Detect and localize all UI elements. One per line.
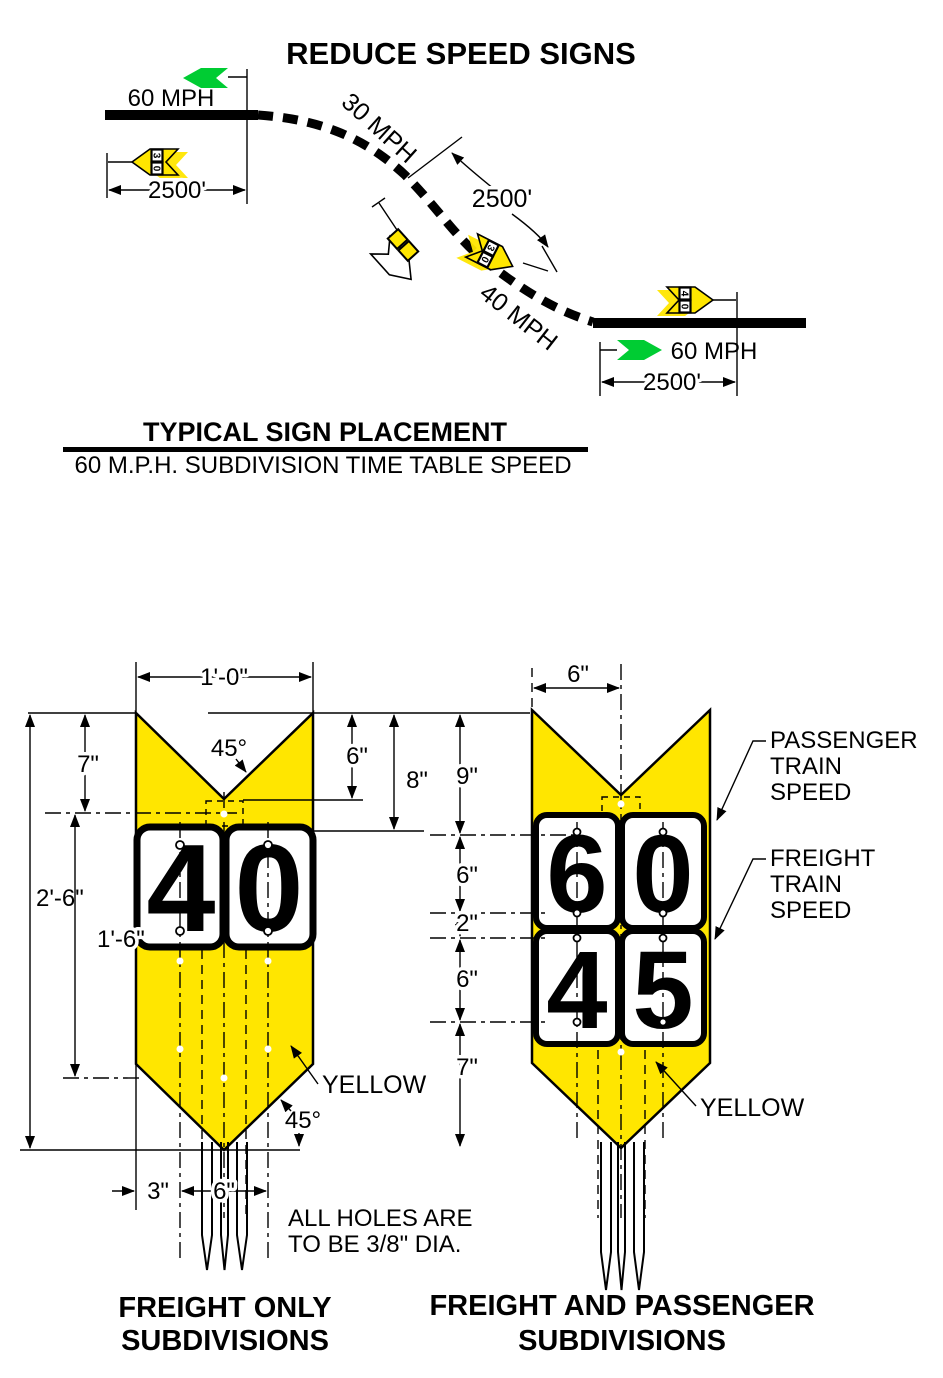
- dimension-arc: [512, 214, 548, 247]
- dimension-arc: [452, 153, 494, 189]
- freight-speed-label-line2: TRAIN: [770, 871, 842, 898]
- leader-line: [523, 263, 548, 271]
- drawing-sheet: REDUCE SPEED SIGNS 30 MPH 40 MPH 60 MPH …: [0, 0, 943, 1378]
- leader-line: [717, 741, 766, 820]
- passenger-speed-label-line1: PASSENGER: [770, 727, 918, 754]
- extension-line: [542, 246, 557, 272]
- total-height-dim: 2'-6": [36, 885, 84, 912]
- notch-angle-dim: 45°: [211, 735, 247, 762]
- hole-dot: [177, 958, 184, 965]
- notch-depth-dim: 6": [346, 743, 368, 770]
- sign-post-lines: [202, 1142, 212, 1270]
- freight-only-caption-line2: SUBDIVISIONS: [121, 1325, 329, 1357]
- hole-dot: [221, 1075, 228, 1082]
- mini-sign-left: 3 0: [132, 149, 188, 178]
- sign-post-lines: [601, 1142, 611, 1290]
- mini-digit: 0: [151, 166, 162, 172]
- distance-right-dim: 2500': [643, 369, 701, 396]
- hole-dot: [265, 1046, 272, 1053]
- hole-offset-dim: 3": [147, 1178, 169, 1205]
- track-segment-60mph-right: [593, 318, 806, 328]
- speed-limit-right-label: 60 MPH: [671, 338, 758, 365]
- mini-digit: 0: [679, 304, 690, 310]
- freight-passenger-sign-detail: 6" 6 0 4 5 9": [429, 661, 917, 1357]
- freight-only-caption-line1: FREIGHT ONLY: [118, 1292, 331, 1324]
- tick-mark: [372, 198, 385, 207]
- freight-speed-label-line1: FREIGHT: [770, 845, 876, 872]
- reduce-speed-signs-diagram: REDUCE SPEED SIGNS 30 MPH 40 MPH 60 MPH …: [0, 0, 943, 1378]
- typical-placement-diagram: REDUCE SPEED SIGNS 30 MPH 40 MPH 60 MPH …: [63, 36, 806, 479]
- sign-post-lines: [634, 1142, 644, 1290]
- mini-digit: 4: [679, 291, 690, 297]
- hole-dot: [618, 801, 625, 808]
- hole-dot: [177, 1046, 184, 1053]
- plaque-top-dim: 8": [406, 767, 428, 794]
- mounting-hole: [660, 910, 667, 917]
- freight-passenger-caption-line1: FREIGHT AND PASSENGER: [429, 1290, 814, 1322]
- track-curve: [258, 115, 593, 322]
- color-callout-label: YELLOW: [322, 1071, 427, 1099]
- passenger-speed-label-line3: SPEED: [770, 779, 851, 806]
- mini-digit: 3: [151, 153, 162, 159]
- placement-heading: TYPICAL SIGN PLACEMENT: [143, 417, 508, 447]
- top-height-dim: 7": [77, 751, 99, 778]
- mounting-hole: [574, 1019, 581, 1026]
- freight-passenger-caption-line2: SUBDIVISIONS: [518, 1325, 726, 1357]
- mounting-hole: [574, 935, 581, 942]
- hole-dot: [221, 811, 228, 818]
- mounting-hole: [660, 935, 667, 942]
- speed-limit-left-label: 60 MPH: [128, 85, 215, 112]
- leader-line: [715, 859, 766, 939]
- holes-note-line2: TO BE 3/8" DIA.: [288, 1231, 461, 1258]
- color-callout-label: YELLOW: [700, 1094, 805, 1122]
- placement-subheading: 60 M.P.H. SUBDIVISION TIME TABLE SPEED: [74, 452, 571, 479]
- page-title: REDUCE SPEED SIGNS: [286, 36, 636, 71]
- green-speed-arrow-right-icon: [617, 340, 662, 360]
- distance-left-dim: 2500': [148, 177, 206, 204]
- mounting-hole: [176, 841, 184, 849]
- curve-speed-lower-label: 40 MPH: [474, 279, 562, 357]
- half-width-dim: 6": [567, 661, 589, 688]
- width-dim: 1'-0": [200, 664, 248, 691]
- body-height-dim: 1'-6": [97, 926, 145, 953]
- top-dim: 9": [456, 763, 478, 790]
- lower-plaque-dim: 6": [456, 966, 478, 993]
- mounting-hole: [660, 1019, 667, 1026]
- distance-mid-dim: 2500': [472, 185, 532, 213]
- holes-note-line1: ALL HOLES ARE: [288, 1205, 473, 1232]
- mini-sign-restriction-point: [371, 229, 429, 288]
- hole-dot: [618, 1049, 625, 1056]
- hole-dot: [265, 958, 272, 965]
- mounting-hole: [264, 927, 272, 935]
- freight-speed-label-line3: SPEED: [770, 897, 851, 924]
- gap-dim: 2": [456, 910, 478, 937]
- mounting-hole: [176, 927, 184, 935]
- upper-plaque-dim: 6": [456, 862, 478, 889]
- point-dim: 7": [456, 1054, 478, 1081]
- mounting-hole: [574, 829, 581, 836]
- mini-sign-right: 4 0: [657, 287, 713, 316]
- mounting-hole: [660, 829, 667, 836]
- mounting-hole: [264, 841, 272, 849]
- hole-spacing-dim: 6": [213, 1178, 235, 1205]
- mounting-hole: [574, 910, 581, 917]
- passenger-speed-label-line2: TRAIN: [770, 753, 842, 780]
